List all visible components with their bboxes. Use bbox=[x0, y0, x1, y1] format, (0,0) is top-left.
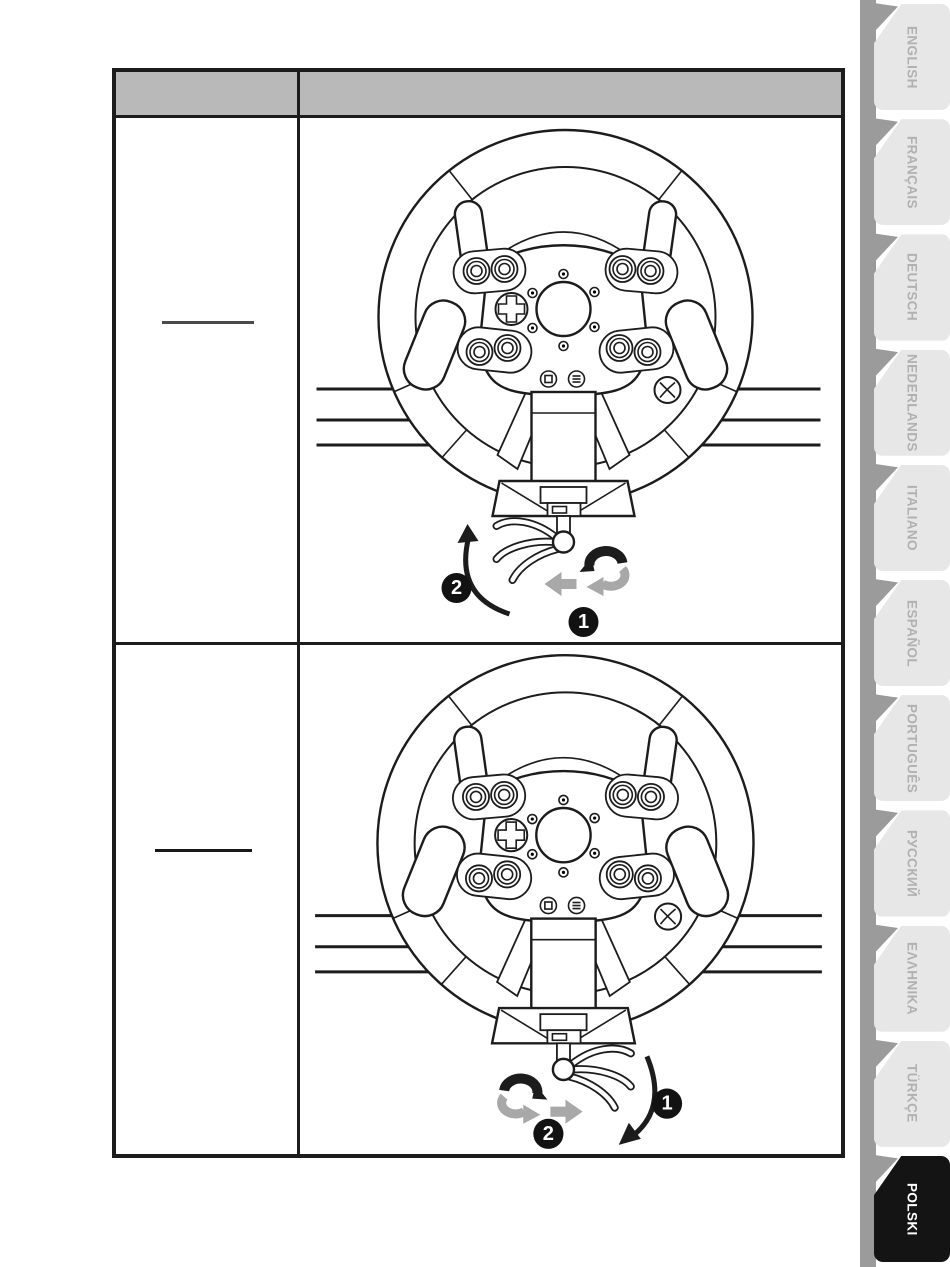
tab-russkiy[interactable]: РУССКИЙ bbox=[860, 806, 950, 921]
tab-turkce[interactable]: TÜRKÇE bbox=[860, 1037, 950, 1152]
step-badge: 2 bbox=[533, 1119, 563, 1149]
tab-deutsch[interactable]: DEUTSCH bbox=[860, 230, 950, 345]
row2-figure-cell: 1 2 bbox=[300, 645, 841, 1154]
svg-text:2: 2 bbox=[451, 577, 462, 599]
table-header-right bbox=[300, 72, 841, 118]
svg-text:1: 1 bbox=[661, 1093, 672, 1115]
row2-description-cell bbox=[116, 645, 300, 1154]
tab-label: PORTUGUÊS bbox=[905, 704, 920, 793]
tab-portugues[interactable]: PORTUGUÊS bbox=[860, 691, 950, 806]
instruction-table: 2 1 1 2 bbox=[112, 68, 845, 1158]
row1-description-cell bbox=[116, 118, 300, 645]
tab-polski[interactable]: POLSKI bbox=[860, 1152, 950, 1267]
row1-figure-cell: 2 1 bbox=[300, 118, 841, 645]
tab-label: NEDERLANDS bbox=[905, 354, 920, 452]
blank-underline bbox=[162, 321, 254, 324]
wheel-clamp-diagram-step1: 2 1 bbox=[300, 118, 841, 642]
swing-arrowhead bbox=[458, 524, 479, 543]
step-badge: 2 bbox=[442, 573, 472, 603]
tab-english[interactable]: ENGLISH bbox=[860, 0, 950, 115]
step-badge: 1 bbox=[569, 607, 599, 637]
tab-label: FRANÇAIS bbox=[905, 136, 920, 209]
svg-text:1: 1 bbox=[578, 611, 589, 633]
tab-label: DEUTSCH bbox=[905, 253, 920, 321]
swing-arrow-down bbox=[633, 1056, 655, 1135]
tab-label: РУССКИЙ bbox=[905, 830, 920, 897]
table-header-left bbox=[116, 72, 300, 118]
tab-ellinika[interactable]: ΕΛΛΗΝΙΚΑ bbox=[860, 922, 950, 1037]
language-sidebar: ENGLISH FRANÇAIS DEUTSCH NEDERLANDS ITAL… bbox=[860, 0, 950, 1267]
wheel-clamp-diagram-step2: 1 2 bbox=[300, 645, 841, 1154]
tab-label: ESPAÑOL bbox=[905, 600, 920, 667]
tab-espanol[interactable]: ESPAÑOL bbox=[860, 576, 950, 691]
step-badge: 1 bbox=[652, 1089, 682, 1119]
svg-text:2: 2 bbox=[543, 1123, 554, 1145]
tab-label: TÜRKÇE bbox=[905, 1064, 920, 1123]
tab-label: ITALIANO bbox=[905, 485, 920, 551]
tab-italiano[interactable]: ITALIANO bbox=[860, 461, 950, 576]
tab-label: ΕΛΛΗΝΙΚΑ bbox=[905, 942, 920, 1015]
tab-nederlands[interactable]: NEDERLANDS bbox=[860, 346, 950, 461]
tab-francais[interactable]: FRANÇAIS bbox=[860, 115, 950, 230]
tab-label: POLSKI bbox=[905, 1183, 920, 1236]
blank-underline bbox=[155, 849, 252, 852]
tab-label: ENGLISH bbox=[905, 26, 920, 89]
